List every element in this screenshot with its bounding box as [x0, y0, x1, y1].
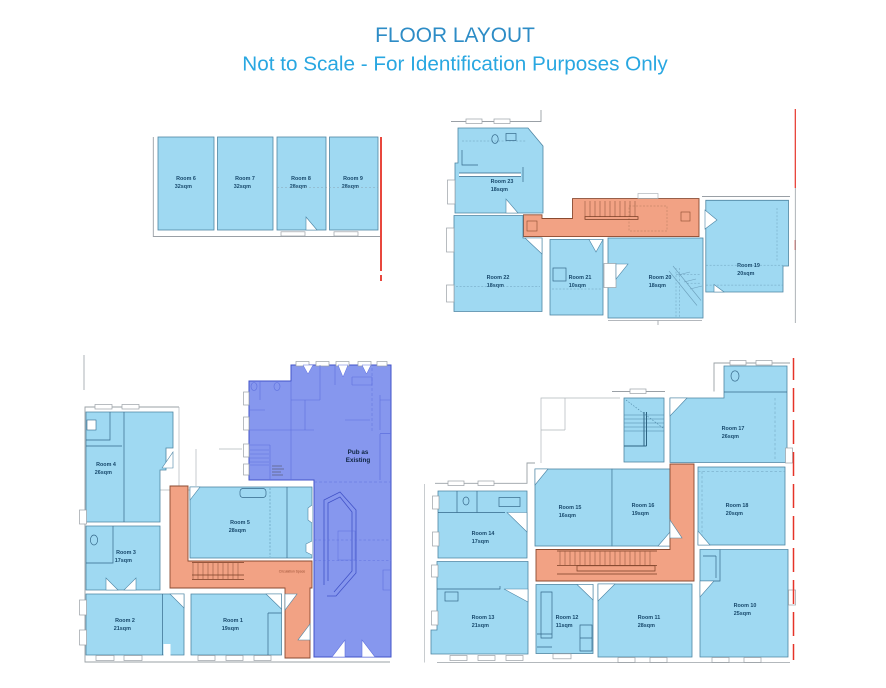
svg-text:Room 2: Room 2 [115, 618, 135, 624]
svg-text:18sqm: 18sqm [649, 283, 666, 289]
svg-text:Room 14: Room 14 [472, 531, 495, 537]
svg-text:28sqm: 28sqm [229, 528, 246, 534]
svg-text:Room 18: Room 18 [726, 503, 749, 509]
svg-text:20sqm: 20sqm [737, 271, 754, 277]
svg-text:18sqm: 18sqm [487, 283, 504, 289]
svg-text:18sqm: 18sqm [491, 187, 508, 193]
svg-text:11sqm: 11sqm [556, 623, 573, 629]
svg-text:Room 15: Room 15 [559, 505, 582, 511]
svg-text:19sqm: 19sqm [222, 626, 239, 632]
svg-text:Circulation Space: Circulation Space [279, 570, 306, 574]
svg-text:26sqm: 26sqm [722, 434, 739, 440]
svg-text:17sqm: 17sqm [472, 539, 489, 545]
svg-text:28sqm: 28sqm [638, 623, 655, 629]
svg-text:Room 7: Room 7 [235, 176, 255, 182]
svg-text:Not to Scale - For Identificat: Not to Scale - For Identification Purpos… [242, 53, 668, 76]
svg-text:32sqm: 32sqm [234, 184, 251, 190]
svg-text:Room 21: Room 21 [569, 275, 592, 281]
svg-text:Room 3: Room 3 [116, 550, 136, 556]
svg-text:20sqm: 20sqm [726, 511, 743, 517]
svg-text:Room 1: Room 1 [223, 618, 243, 624]
svg-text:25sqm: 25sqm [734, 611, 751, 617]
svg-text:10sqm: 10sqm [569, 283, 586, 289]
svg-text:Room 8: Room 8 [291, 176, 311, 182]
svg-text:Room 19: Room 19 [737, 263, 760, 269]
svg-text:Room 12: Room 12 [556, 615, 579, 621]
svg-text:Room 17: Room 17 [722, 426, 745, 432]
svg-text:Room 4: Room 4 [96, 462, 116, 468]
svg-text:17sqm: 17sqm [115, 558, 132, 564]
svg-text:26sqm: 26sqm [95, 470, 112, 476]
svg-text:Room 16: Room 16 [632, 503, 655, 509]
svg-text:Room 10: Room 10 [734, 603, 757, 609]
svg-text:Room 11: Room 11 [638, 615, 660, 621]
svg-text:Room 20: Room 20 [649, 275, 672, 281]
svg-text:FLOOR LAYOUT: FLOOR LAYOUT [375, 24, 535, 47]
svg-text:21sqm: 21sqm [472, 623, 489, 629]
svg-text:Room 22: Room 22 [487, 275, 510, 281]
svg-text:Room 13: Room 13 [472, 615, 495, 621]
svg-text:Room 9: Room 9 [343, 176, 363, 182]
svg-text:Room 23: Room 23 [491, 179, 514, 185]
svg-text:28sqm: 28sqm [342, 184, 359, 190]
svg-text:32sqm: 32sqm [175, 184, 192, 190]
svg-text:19sqm: 19sqm [632, 511, 649, 517]
svg-text:Existing: Existing [346, 457, 371, 464]
svg-text:21sqm: 21sqm [114, 626, 131, 632]
svg-text:Pub as: Pub as [348, 449, 369, 456]
svg-text:Room 6: Room 6 [176, 176, 196, 182]
svg-text:16sqm: 16sqm [559, 513, 576, 519]
svg-text:28sqm: 28sqm [290, 184, 307, 190]
svg-text:Room 5: Room 5 [230, 520, 250, 526]
